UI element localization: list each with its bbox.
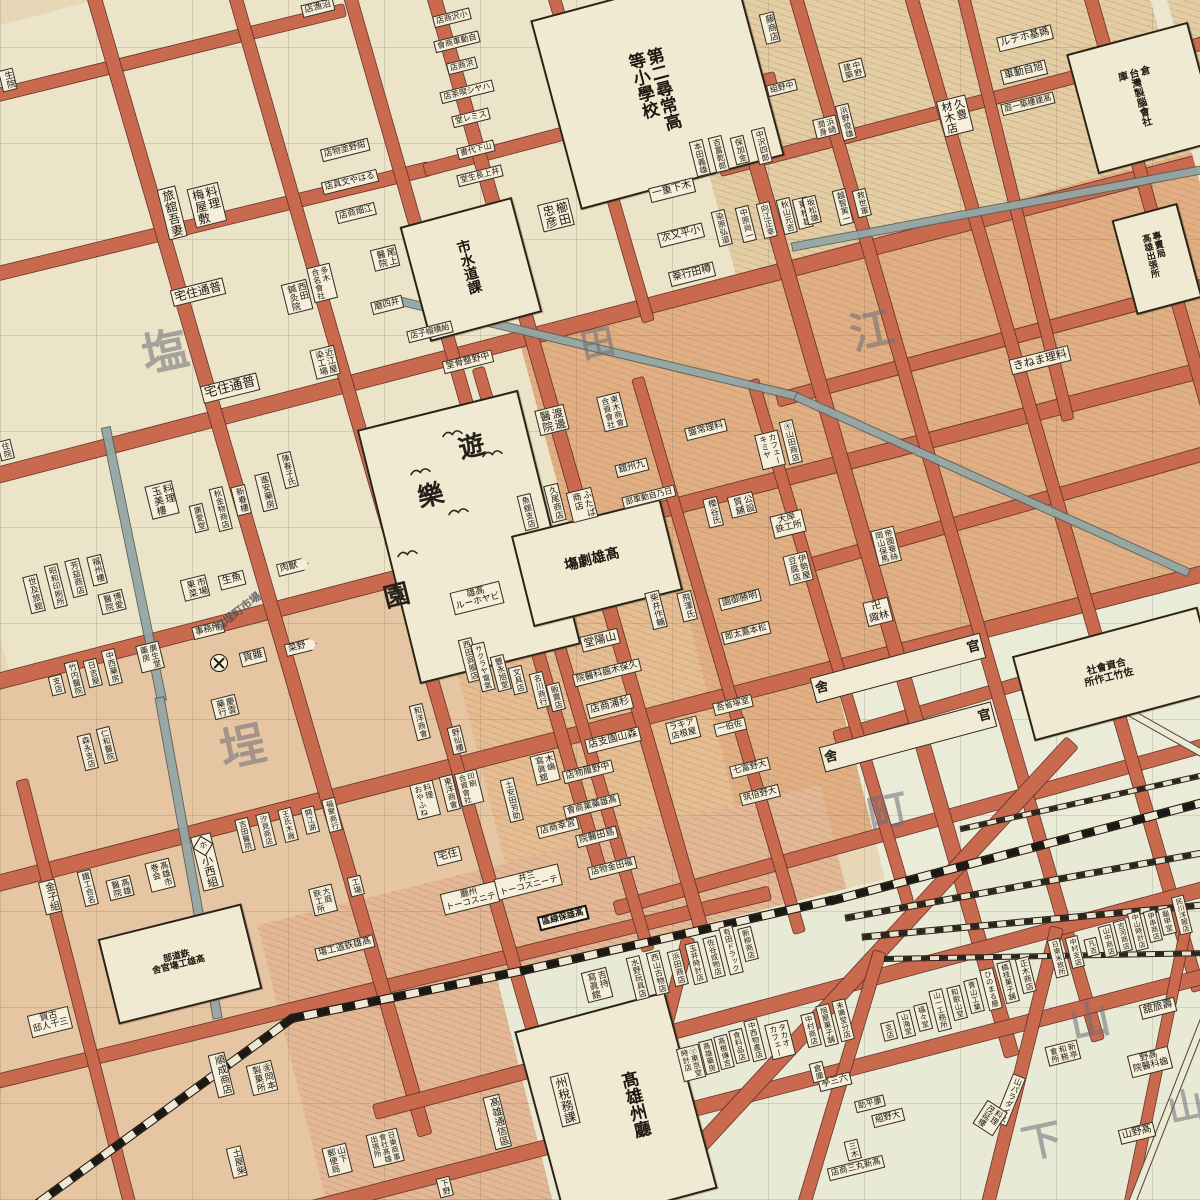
label-text: 福州樓 — [90, 557, 105, 584]
label-text: 三木 — [847, 1141, 859, 1159]
bird-icon — [446, 499, 471, 522]
vintage-city-map: 塩埕江田町山下山 店漁沼藤商店組野中ルテホ基媽車動自旭庭一築樓建髙旅舘吾妻料理梅… — [0, 0, 1200, 1200]
label-text: 工塲 — [350, 877, 362, 895]
label-text: 下野 — [439, 1178, 451, 1196]
district-name-char: 埕 — [213, 717, 272, 777]
label-text: 廣愛堂 — [192, 505, 206, 530]
label-text: 救世軍 — [855, 190, 869, 215]
label-text: 支店 — [51, 676, 63, 694]
label-text: 小西組 — [200, 854, 219, 889]
label-text: 舍 — [814, 680, 830, 697]
district-name-char: 下 — [1016, 1116, 1068, 1168]
market-symbol-icon — [210, 654, 228, 672]
district-name-char: 江 — [844, 303, 901, 360]
label-text: 野仙樓 — [450, 727, 464, 752]
label-text: 新春樓 — [234, 487, 249, 514]
label-text: 土屋柴 — [229, 1148, 245, 1176]
bird-icon — [395, 541, 420, 564]
district-name-char: 塩 — [135, 322, 194, 382]
label-text: 舍 — [823, 749, 839, 766]
label-text: 飛澤氏 — [680, 593, 695, 620]
label-text: 生院 — [1, 70, 15, 90]
label-text: 龜甲堂 — [1160, 909, 1173, 933]
label-text: 坂松雄 — [805, 197, 819, 222]
label-text: 藤商店 — [762, 14, 778, 42]
label-text: 官 — [966, 639, 982, 656]
label-text: 住院 — [0, 441, 12, 459]
label-text: 文具店 — [511, 667, 525, 692]
label-text: 福々堂 — [916, 1005, 929, 1029]
label-text: 凡吉 — [1087, 939, 1098, 954]
district-name-char: 田 — [575, 323, 620, 368]
district-name-char: 町 — [862, 786, 914, 838]
label-text: 官 — [977, 708, 993, 725]
label-text: 倉庫 — [812, 1063, 824, 1081]
label-text: 山海堂 — [899, 1012, 912, 1036]
bird-icon — [408, 459, 433, 482]
label-text: 闗江湖 — [303, 808, 316, 832]
label-text: 保加金 — [733, 137, 747, 162]
label-text: 支店 — [883, 1023, 894, 1039]
label-text: 日吉屋 — [86, 660, 100, 685]
label-text: 櫻谷氏 — [706, 499, 721, 526]
label-text: 販賣店 — [549, 684, 563, 709]
